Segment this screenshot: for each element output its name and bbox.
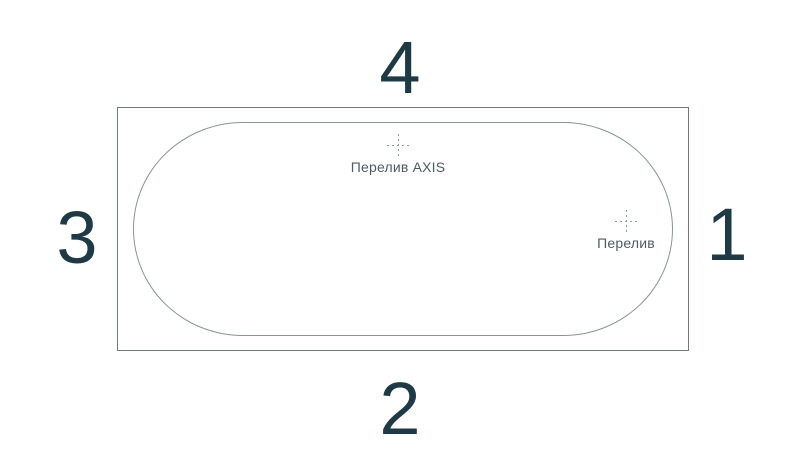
side-label-3: 3 [52,201,102,275]
side-label-4: 4 [0,31,800,105]
overflow-axis-marker: Перелив AXIS [323,134,473,175]
side-label-2: 2 [0,372,800,446]
overflow-label: Перелив [597,235,655,251]
center-mark-icon [615,210,637,232]
overflow-axis-label: Перелив AXIS [351,159,446,175]
center-mark-icon [387,134,409,156]
overflow-marker: Перелив [551,210,701,251]
bathtub-top-view-diagram: 4 3 1 2 Перелив AXIS Перелив [0,0,800,464]
side-label-1: 1 [702,198,752,272]
